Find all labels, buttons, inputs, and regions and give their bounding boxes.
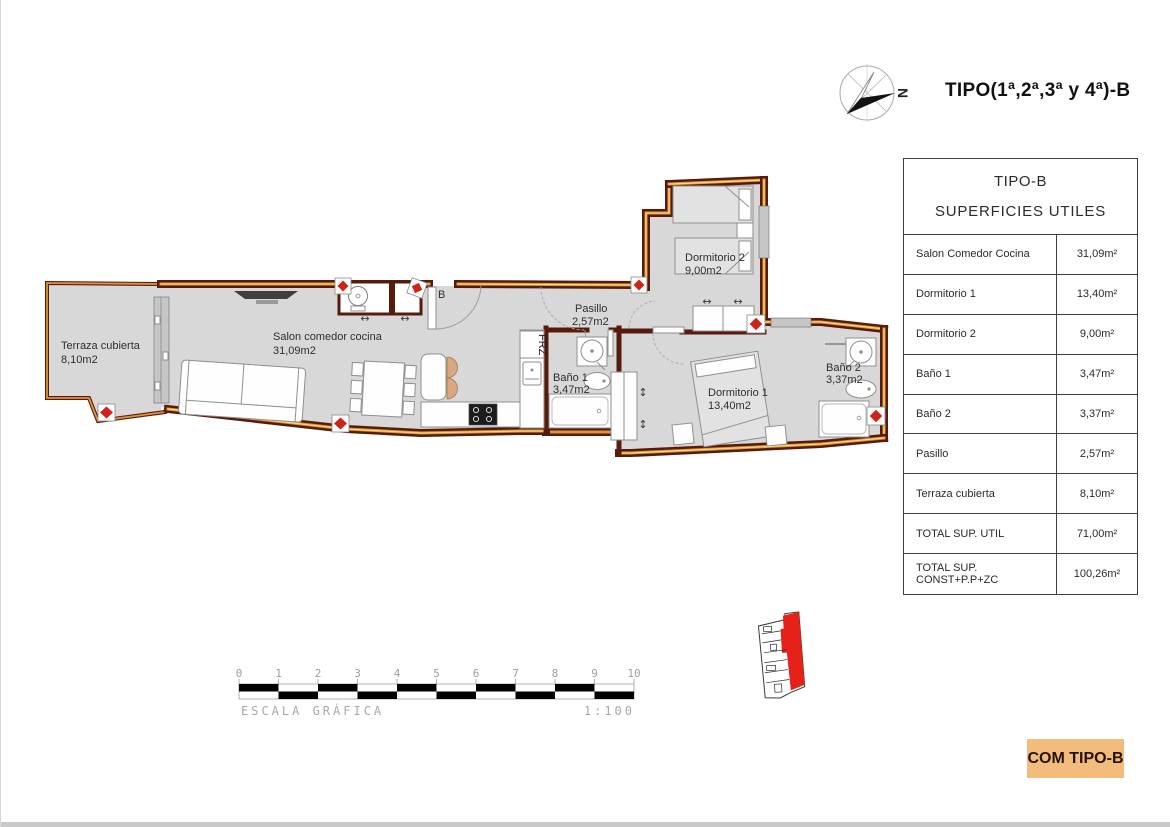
row-value: 13,40m² — [1056, 275, 1137, 314]
row-label: Baño 2 — [904, 395, 1056, 434]
table-subtitle: SUPERFICIES UTILES — [935, 203, 1106, 220]
svg-text:6: 6 — [473, 667, 480, 680]
pillar — [332, 415, 349, 432]
table-row: Baño 1 3,47m² — [904, 355, 1137, 395]
bed-single — [673, 186, 753, 223]
pillar — [631, 277, 647, 293]
kitchen-table — [421, 354, 458, 400]
svg-text:13,40m2: 13,40m2 — [708, 400, 751, 412]
row-label: Baño 1 — [904, 355, 1056, 394]
scale-bar: 0 1 2 3 4 5 6 7 8 9 10 — [236, 667, 641, 718]
row-label: Terraza cubierta — [904, 474, 1056, 513]
page-title: TIPO(1ª,2ª,3ª y 4ª)-B — [945, 80, 1145, 102]
svg-text:0: 0 — [236, 667, 243, 680]
fridge-label: FRZ — [536, 334, 548, 356]
nightstand — [765, 425, 787, 446]
room-label-banyo2: Baño 2 3,37m2 — [826, 362, 863, 386]
row-value: 31,09m² — [1056, 235, 1137, 274]
table-row: Baño 2 3,37m² — [904, 395, 1137, 435]
table-row: TOTAL SUP. UTIL 71,00m² — [904, 514, 1137, 554]
dorm1-window — [771, 318, 811, 327]
svg-text:3,47m2: 3,47m2 — [553, 384, 590, 396]
svg-text:↕: ↕ — [638, 386, 647, 399]
table-row: Dormitorio 1 13,40m² — [904, 275, 1137, 315]
row-value: 8,10m² — [1056, 474, 1137, 513]
svg-text:Terraza cubierta: Terraza cubierta — [61, 340, 141, 352]
kitchen-sink — [523, 362, 541, 385]
svg-text:8: 8 — [552, 667, 559, 680]
scale-ratio: 1:100 — [584, 704, 635, 718]
compass-north-label: N — [895, 88, 911, 98]
row-label: Pasillo — [904, 434, 1056, 473]
pillar — [335, 278, 351, 294]
svg-text:8,10m2: 8,10m2 — [61, 354, 98, 366]
row-label: TOTAL SUP. CONST+P.P+ZC — [904, 554, 1056, 594]
svg-text:Salon comedor cocina: Salon comedor cocina — [273, 331, 383, 343]
svg-text:7: 7 — [512, 667, 519, 680]
areas-table: TIPO-B SUPERFICIES UTILES Salon Comedor … — [903, 158, 1138, 595]
nightstand — [672, 423, 694, 445]
svg-text:↔: ↔ — [733, 295, 742, 308]
dorm1-door-leaf — [653, 327, 684, 333]
svg-text:4: 4 — [394, 667, 401, 680]
key-plan — [758, 612, 805, 699]
row-value: 2,57m² — [1056, 434, 1137, 473]
stove — [469, 404, 497, 425]
svg-text:Pasillo: Pasillo — [575, 303, 607, 315]
pillar — [867, 407, 885, 425]
row-value: 3,37m² — [1056, 395, 1137, 434]
pillar — [747, 315, 765, 333]
svg-text:Dormitorio 2: Dormitorio 2 — [685, 252, 745, 264]
bed-double — [691, 351, 772, 447]
svg-text:3: 3 — [354, 667, 361, 680]
svg-text:↕: ↕ — [638, 418, 647, 431]
svg-text:↔: ↔ — [702, 295, 711, 308]
sofa — [178, 360, 305, 423]
row-value: 100,26m² — [1056, 554, 1137, 594]
row-label: TOTAL SUP. UTIL — [904, 514, 1056, 553]
drawing-sheet: N — [0, 0, 1170, 827]
sliding-window-arrow: ↔ — [360, 312, 369, 325]
svg-text:Baño 1: Baño 1 — [553, 372, 588, 384]
row-value: 71,00m² — [1056, 514, 1137, 553]
sliding-window-arrow: ↔ — [400, 312, 409, 325]
svg-text:Baño 2: Baño 2 — [826, 362, 861, 374]
scale-caption: ESCALA GRÁFICA — [241, 703, 384, 718]
row-label: Salon Comedor Cocina — [904, 235, 1056, 274]
svg-text:1: 1 — [275, 667, 282, 680]
bathtub — [549, 394, 611, 428]
svg-text:Dormitorio 1: Dormitorio 1 — [708, 387, 768, 399]
row-label: Dormitorio 1 — [904, 275, 1056, 314]
row-value: 9,00m² — [1056, 315, 1137, 354]
bathtub — [819, 401, 869, 437]
type-footer-label: COM TIPO-B — [1028, 750, 1124, 768]
table-row: Pasillo 2,57m² — [904, 434, 1137, 474]
nightstand — [737, 223, 753, 238]
svg-text:10: 10 — [627, 667, 640, 680]
page-bottom-edge — [1, 822, 1170, 827]
pillar — [98, 404, 115, 421]
svg-text:2,57m2: 2,57m2 — [572, 316, 609, 328]
type-footer-badge: COM TIPO-B — [1027, 739, 1124, 778]
row-label: Dormitorio 2 — [904, 315, 1056, 354]
table-row: Salon Comedor Cocina 31,09m² — [904, 235, 1137, 275]
table-row: TOTAL SUP. CONST+P.P+ZC 100,26m² — [904, 554, 1137, 594]
svg-text:31,09m2: 31,09m2 — [273, 345, 316, 357]
svg-text:5: 5 — [433, 667, 440, 680]
table-row: Terraza cubierta 8,10m² — [904, 474, 1137, 514]
svg-text:2: 2 — [315, 667, 322, 680]
compass: N — [840, 64, 911, 122]
svg-text:3,37m2: 3,37m2 — [826, 374, 863, 386]
dorm2-window — [759, 206, 769, 258]
entrance-door-label: B — [438, 289, 445, 301]
room-label-pasillo: Pasillo 2,57m2 — [572, 303, 609, 328]
svg-text:9,00m2: 9,00m2 — [685, 265, 722, 277]
table-row: Dormitorio 2 9,00m² — [904, 315, 1137, 355]
dining-table — [350, 360, 417, 417]
table-title: TIPO-B — [994, 173, 1047, 190]
svg-text:9: 9 — [591, 667, 598, 680]
row-value: 3,47m² — [1056, 355, 1137, 394]
areas-table-header: TIPO-B SUPERFICIES UTILES — [904, 159, 1137, 235]
room-label-banyo1: Baño 1 3,47m2 — [553, 372, 590, 396]
